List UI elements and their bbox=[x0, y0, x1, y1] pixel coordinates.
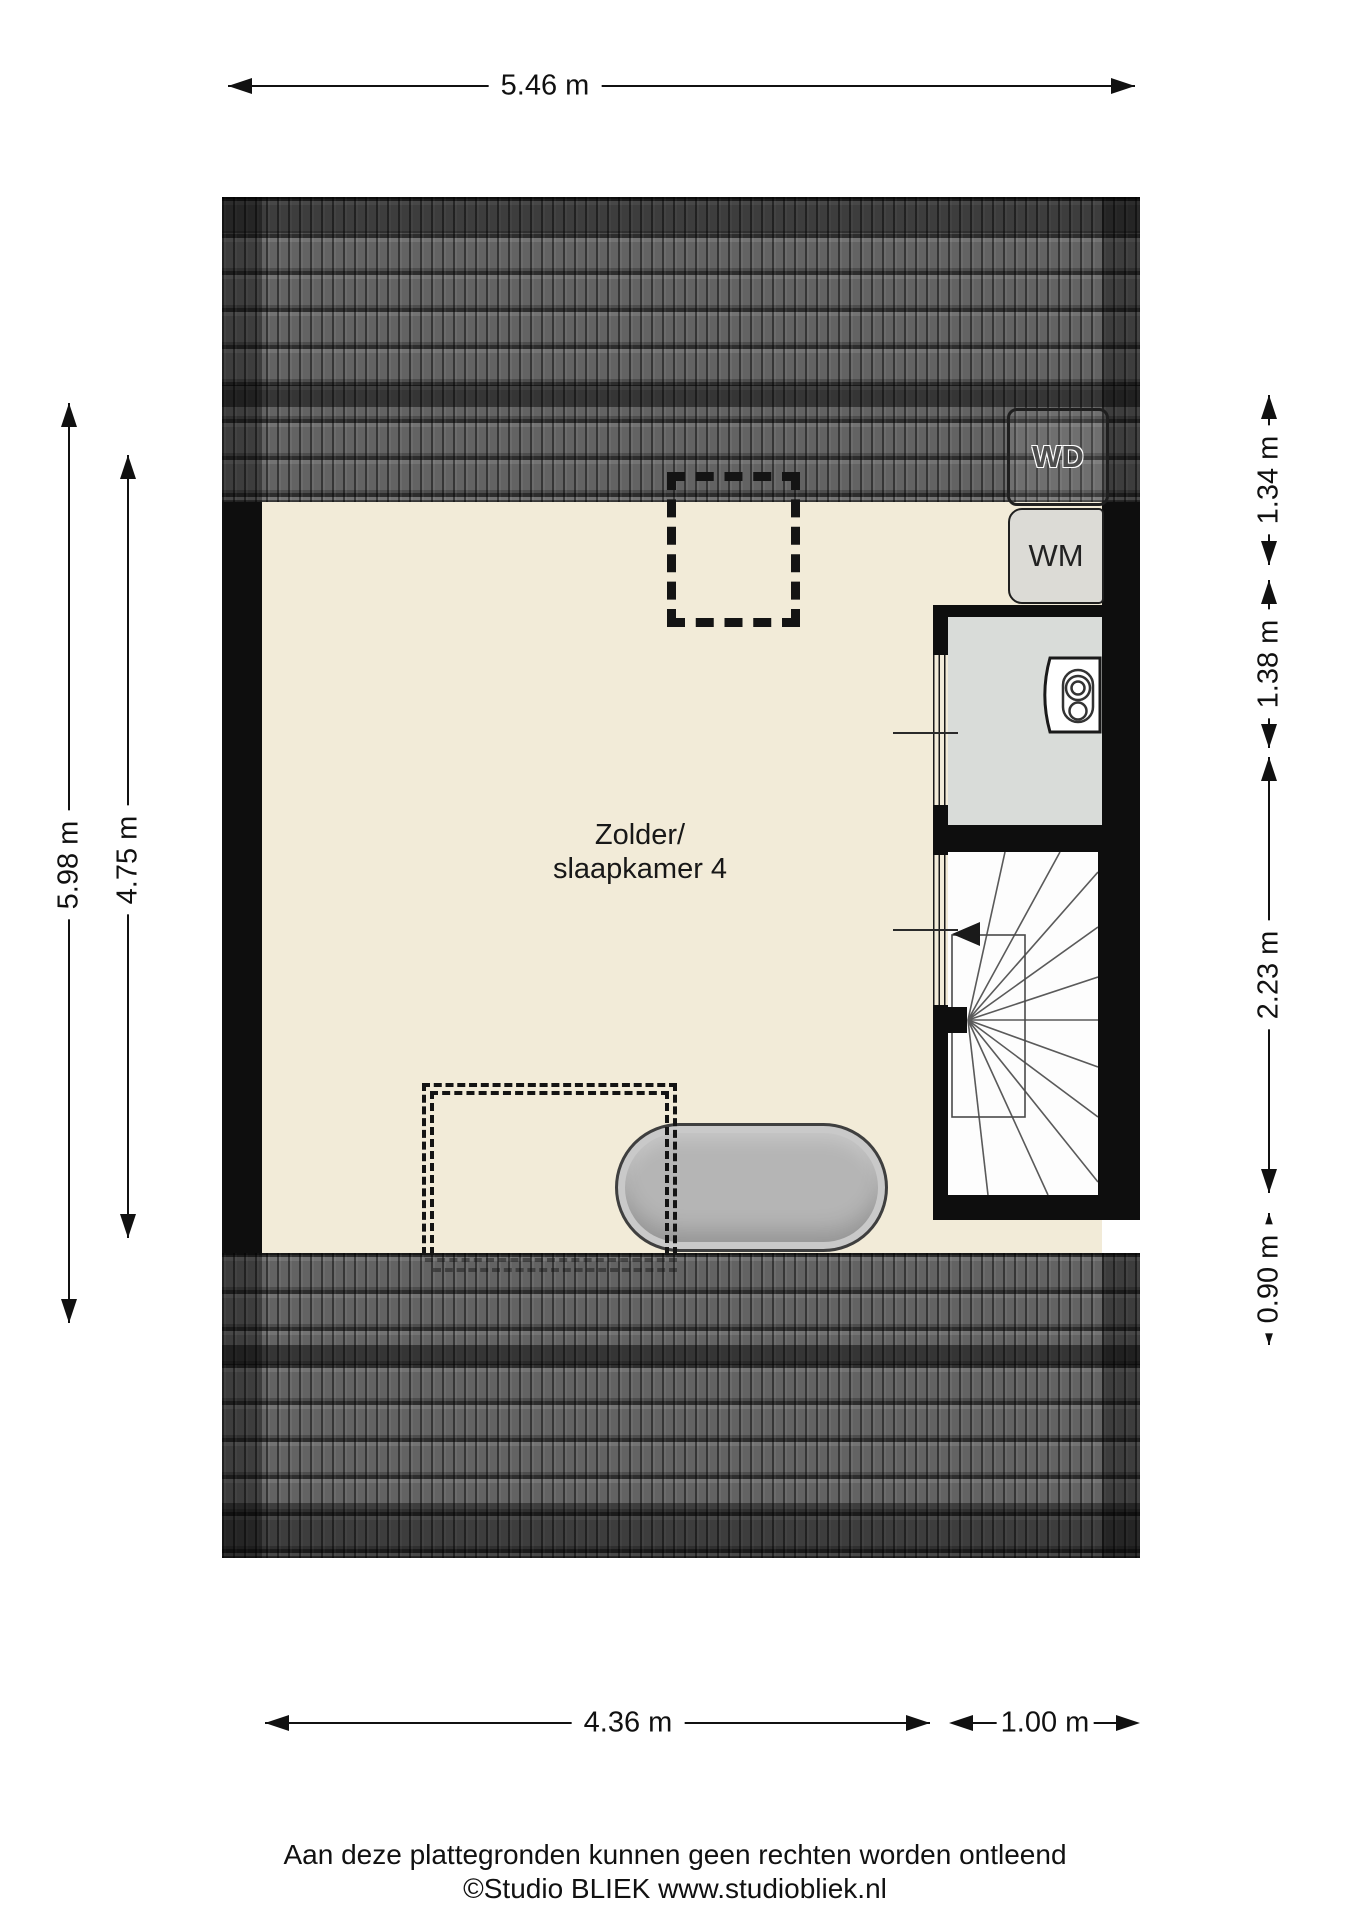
headroom-dashed-roof-line-1 bbox=[425, 1258, 677, 1262]
dryer-unit: WD bbox=[1007, 408, 1109, 506]
room-label-line2: slaapkamer 4 bbox=[480, 852, 800, 886]
washing-machine-unit: WM bbox=[1008, 508, 1104, 604]
arrow-down-icon bbox=[61, 1299, 77, 1323]
roof-bottom bbox=[222, 1253, 1140, 1558]
dim-bottom-main: 4.36 m bbox=[265, 1708, 930, 1738]
dim-right-4: 0.90 m bbox=[1254, 1213, 1284, 1345]
arrow-left-icon bbox=[228, 78, 252, 94]
arrow-up-icon bbox=[120, 455, 136, 479]
dim-bottom-stairs-label: 1.00 m bbox=[997, 1705, 1094, 1742]
dim-right-2-label: 1.38 m bbox=[1251, 610, 1288, 719]
dim-right-1: 1.34 m bbox=[1254, 395, 1284, 565]
headroom-dashed-roof-line-2 bbox=[433, 1268, 677, 1272]
arrow-down-icon bbox=[1261, 724, 1277, 748]
bathtub bbox=[615, 1123, 888, 1252]
dim-top-width-label: 5.46 m bbox=[489, 68, 602, 105]
arrow-left-icon bbox=[949, 1715, 973, 1731]
arrow-left-icon bbox=[265, 1715, 289, 1731]
dim-left-interior-label: 4.75 m bbox=[110, 806, 147, 915]
room-label: Zolder/ slaapkamer 4 bbox=[480, 818, 800, 886]
arrow-up-icon bbox=[1261, 757, 1277, 781]
arrow-up-icon bbox=[61, 403, 77, 427]
arrow-down-icon bbox=[120, 1214, 136, 1238]
dim-right-1-label: 1.34 m bbox=[1251, 426, 1288, 535]
dryer-label: WD bbox=[1032, 439, 1084, 475]
dim-left-interior: 4.75 m bbox=[113, 455, 143, 1238]
dim-left-total-label: 5.98 m bbox=[51, 811, 88, 920]
arrow-right-icon bbox=[1116, 1715, 1140, 1731]
stair-newel-post bbox=[935, 1007, 967, 1033]
dim-right-4-label: 0.90 m bbox=[1251, 1225, 1288, 1334]
dim-left-total: 5.98 m bbox=[54, 403, 84, 1323]
arrow-right-icon bbox=[906, 1715, 930, 1731]
wall-left bbox=[222, 502, 262, 1253]
boiler-room-door bbox=[933, 655, 948, 805]
dim-bottom-stairs: 1.00 m bbox=[950, 1708, 1140, 1738]
roof-bottom-eave-shadow bbox=[222, 1503, 1140, 1558]
roof-top-wall-line bbox=[222, 385, 1140, 407]
boiler-icon bbox=[1041, 656, 1103, 734]
roof-top bbox=[222, 197, 1140, 502]
dim-right-3-label: 2.23 m bbox=[1251, 921, 1288, 1030]
skylight-dashed-outline bbox=[667, 472, 800, 627]
floorplan-page: WD WM bbox=[0, 0, 1350, 1909]
staircase-area bbox=[948, 852, 1098, 1195]
arrow-down-icon bbox=[1261, 541, 1277, 565]
dim-line bbox=[228, 85, 1135, 87]
disclaimer-line: Aan deze plattegronden kunnen geen recht… bbox=[0, 1838, 1350, 1872]
roof-top-ridge-shadow bbox=[222, 197, 1140, 233]
arrow-right-icon bbox=[1111, 78, 1135, 94]
arrow-down-icon bbox=[1261, 1169, 1277, 1193]
roof-bottom-wall-line bbox=[222, 1345, 1140, 1365]
room-label-line1: Zolder/ bbox=[480, 818, 800, 852]
disclaimer-footer: Aan deze plattegronden kunnen geen recht… bbox=[0, 1838, 1350, 1906]
dim-right-3: 2.23 m bbox=[1254, 757, 1284, 1193]
winder-staircase-icon bbox=[948, 852, 1098, 1195]
dim-bottom-main-label: 4.36 m bbox=[572, 1705, 685, 1742]
dim-top-width: 5.46 m bbox=[228, 71, 1135, 101]
roof-bottom-left-edge bbox=[222, 1253, 262, 1558]
washing-machine-label: WM bbox=[1028, 538, 1083, 574]
boiler-room-door-tick bbox=[893, 732, 958, 734]
staircase-door-tick bbox=[893, 929, 958, 931]
stair-direction-arrow-icon bbox=[952, 922, 980, 946]
credit-line: ©Studio BLIEK www.studiobliek.nl bbox=[0, 1872, 1350, 1906]
arrow-up-icon bbox=[1261, 395, 1277, 419]
arrow-up-icon bbox=[1261, 580, 1277, 604]
roof-top-left-edge bbox=[222, 197, 262, 502]
roof-bottom-right-edge bbox=[1102, 1253, 1140, 1558]
dim-right-2: 1.38 m bbox=[1254, 580, 1284, 748]
